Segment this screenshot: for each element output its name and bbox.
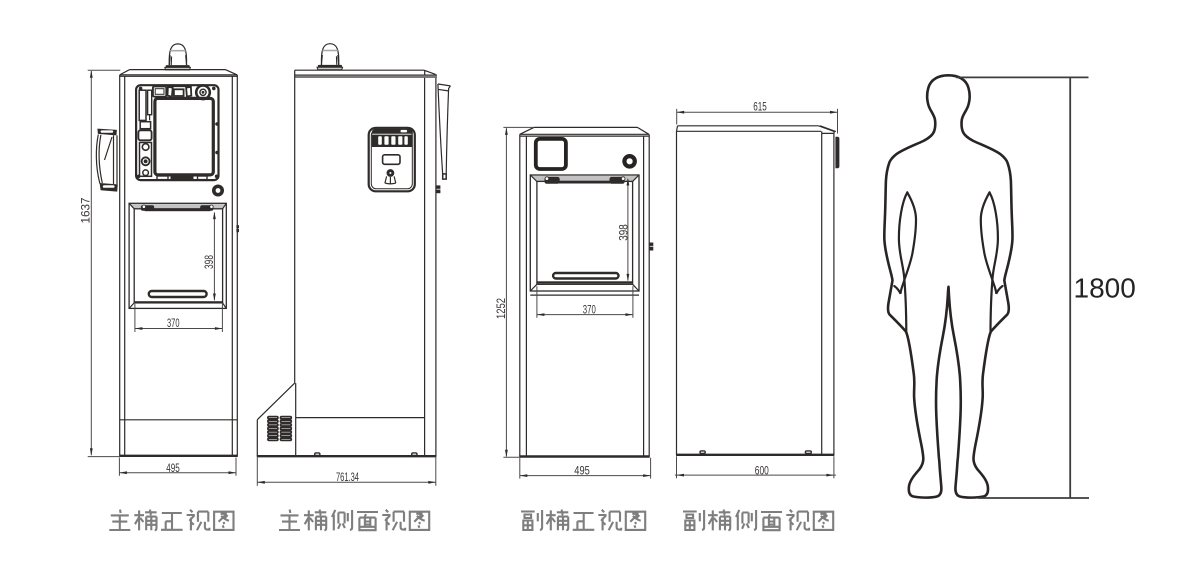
svg-text:398: 398 [619, 224, 631, 241]
svg-text:1637: 1637 [80, 198, 92, 224]
svg-text:615: 615 [753, 102, 767, 114]
svg-text:398: 398 [204, 255, 216, 269]
svg-text:495: 495 [574, 466, 590, 478]
svg-text:1252: 1252 [496, 298, 508, 319]
svg-text:370: 370 [583, 305, 596, 317]
svg-text:1800: 1800 [1074, 273, 1136, 304]
svg-text:761.34: 761.34 [336, 472, 359, 484]
svg-text:495: 495 [166, 463, 180, 475]
svg-text:370: 370 [167, 318, 180, 330]
svg-text:600: 600 [755, 466, 769, 478]
